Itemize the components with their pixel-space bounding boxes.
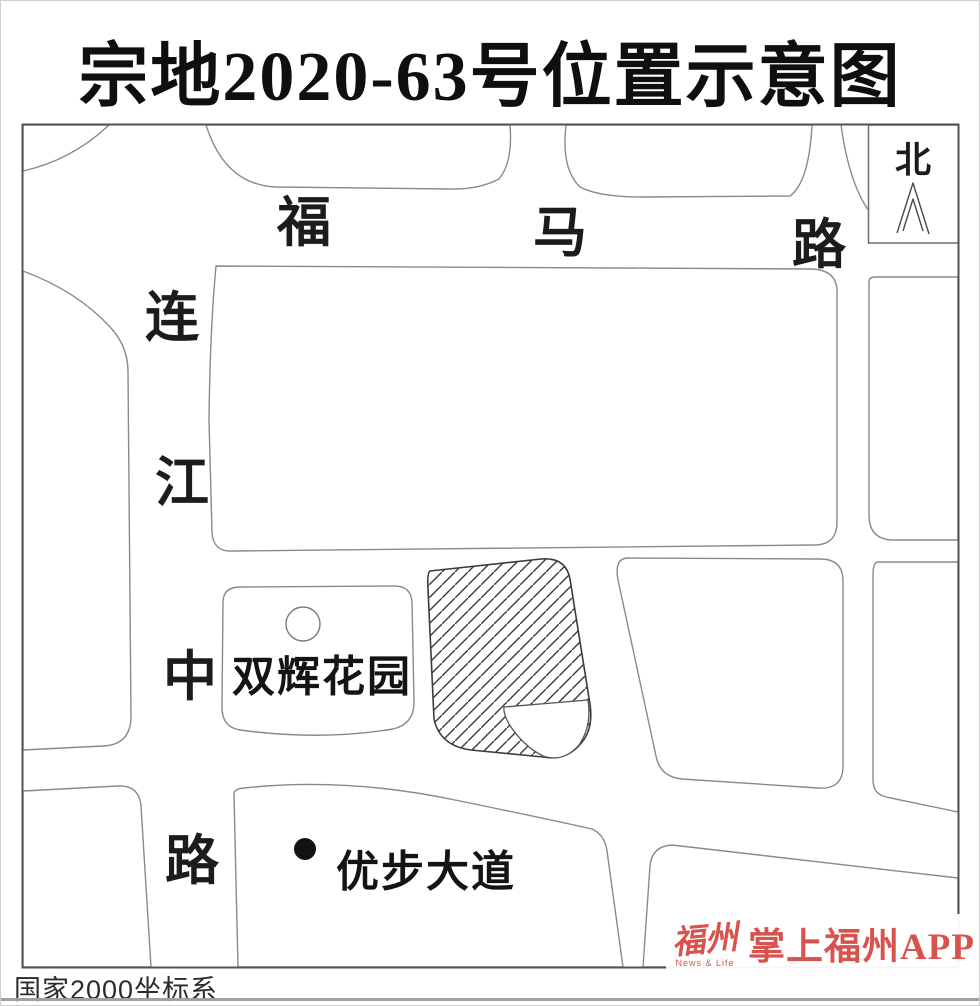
road-label-lianjiang-char-3: 中 <box>163 650 217 704</box>
watermark-app-text: 掌上福州APP <box>748 929 975 968</box>
road-label-lianjiang-char-4: 路 <box>165 834 219 888</box>
block-top-center-east <box>565 125 812 197</box>
landmark-label-shuanghui-garden: 双辉花园 <box>232 657 412 700</box>
block-right-column-upper <box>869 277 958 540</box>
block-center-large <box>209 266 837 551</box>
road-label-fuma-char-3: 路 <box>792 218 846 272</box>
block-top-center-west <box>206 125 511 189</box>
landmark-label-youbu-avenue: 优步大道 <box>336 852 516 895</box>
road-label-fuma-char-1: 福 <box>277 196 331 250</box>
block-right-column-lower <box>873 562 958 812</box>
garden-circle-marker <box>286 607 320 641</box>
watermark: 福州 News & Life 掌上福州APP <box>666 914 980 970</box>
block-left-middle <box>23 271 131 750</box>
road-edge-top-right-diagonal <box>841 125 869 211</box>
block-top-left-corner <box>23 125 109 171</box>
watermark-logo-text: 福州 <box>671 922 740 961</box>
watermark-logo: 福州 News & Life <box>672 925 738 968</box>
block-center-right <box>617 558 843 788</box>
north-label: 北 <box>895 142 931 178</box>
block-bottom-left <box>23 786 151 967</box>
road-label-lianjiang-char-2: 江 <box>155 456 209 510</box>
youbu-avenue-dot-marker <box>294 838 316 860</box>
bottom-divider-line <box>0 998 980 1001</box>
road-label-fuma-char-2: 马 <box>533 206 587 260</box>
parcel-location-sketch-page: 宗地2020-63号位置示意图 <box>0 0 980 1006</box>
road-label-lianjiang-char-1: 连 <box>145 291 199 345</box>
